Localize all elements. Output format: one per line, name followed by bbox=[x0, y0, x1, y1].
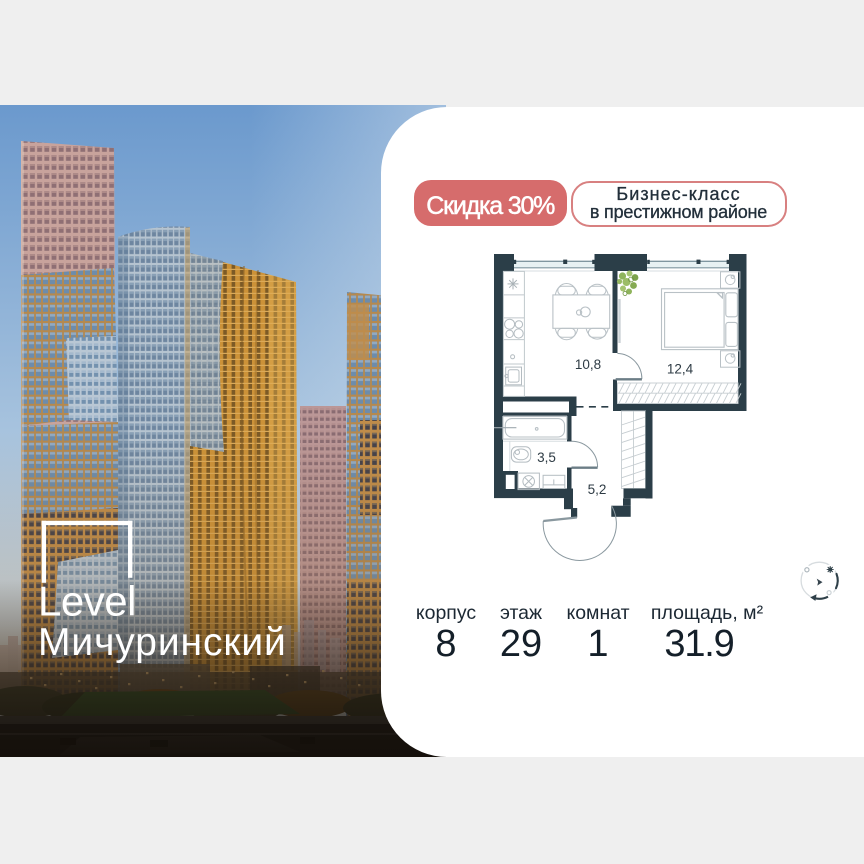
svg-text:5,2: 5,2 bbox=[588, 482, 607, 497]
svg-text:Мичуринский: Мичуринский bbox=[38, 621, 287, 664]
svg-text:Level: Level bbox=[38, 578, 136, 625]
svg-text:10,8: 10,8 bbox=[575, 357, 601, 372]
svg-text:3,5: 3,5 bbox=[537, 450, 556, 465]
svg-text:12,4: 12,4 bbox=[667, 362, 694, 377]
